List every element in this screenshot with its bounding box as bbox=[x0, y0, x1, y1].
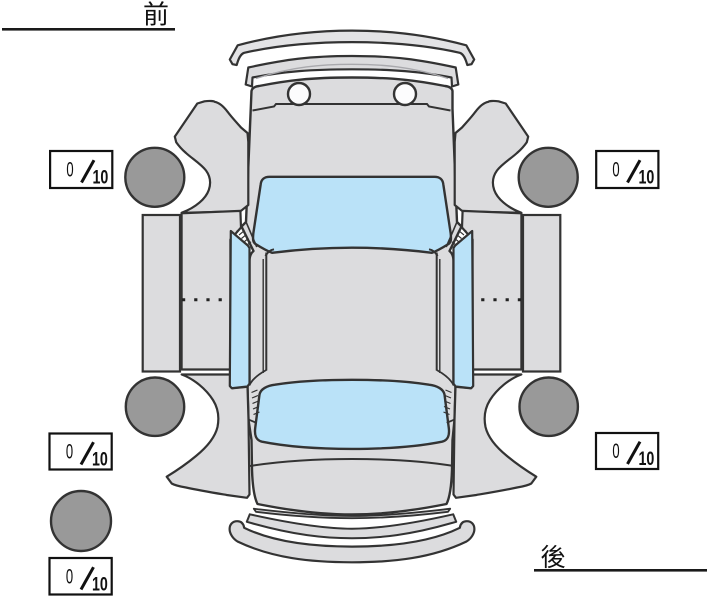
svg-text:0: 0 bbox=[612, 157, 619, 181]
svg-text:10: 10 bbox=[92, 573, 108, 595]
svg-text:0: 0 bbox=[66, 439, 73, 463]
svg-text:後: 後 bbox=[540, 544, 565, 572]
svg-text:前: 前 bbox=[143, 0, 169, 30]
svg-text:10: 10 bbox=[93, 166, 109, 188]
svg-text:10: 10 bbox=[92, 448, 108, 470]
svg-text:10: 10 bbox=[639, 448, 655, 470]
svg-text:0: 0 bbox=[66, 564, 73, 588]
svg-text:0: 0 bbox=[612, 439, 619, 463]
svg-text:10: 10 bbox=[639, 166, 655, 188]
svg-text:0: 0 bbox=[66, 157, 73, 181]
